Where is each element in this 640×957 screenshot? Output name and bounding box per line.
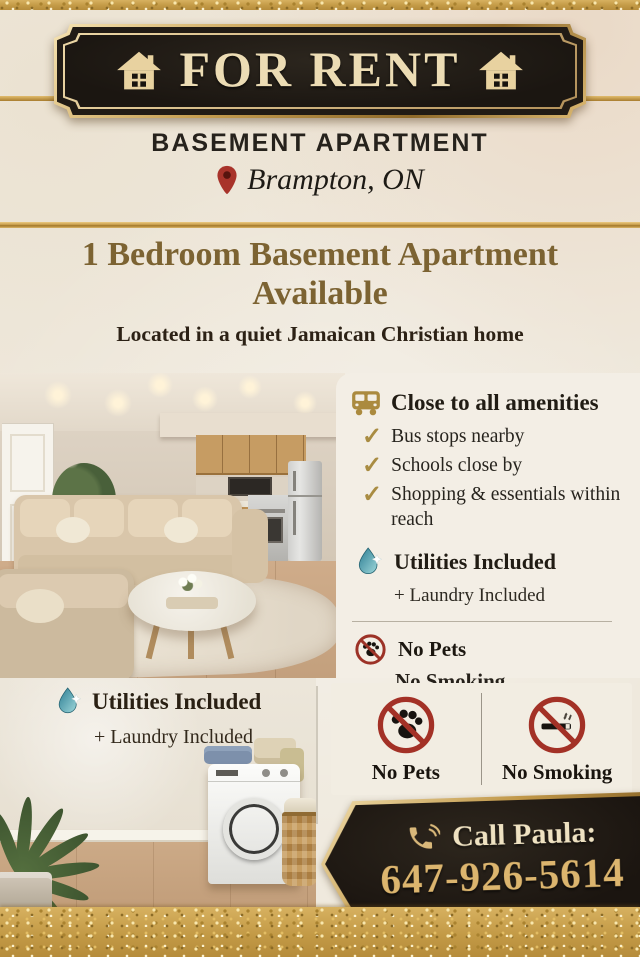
gold-glitter-top-band [0, 0, 640, 10]
laundry-utilities-title: Utilities Included [92, 689, 261, 715]
no-pets-label: No Pets [372, 760, 440, 785]
fridge-handle [293, 471, 296, 491]
microwave [228, 477, 272, 496]
bulkhead [160, 413, 345, 437]
panel-divider [352, 621, 612, 622]
headline-line2: Available [252, 275, 387, 312]
sofa-arm [232, 509, 268, 583]
phone-number: 647-926-5614 [380, 851, 626, 902]
checkmark-icon: ✓ [362, 483, 382, 508]
checkmark-icon: ✓ [362, 454, 382, 479]
accent-pillow [56, 517, 90, 543]
potted-palm-plant [0, 770, 108, 928]
loveseat-pillow [16, 589, 64, 623]
water-drop-icon [356, 546, 384, 578]
headline-section: 1 Bedroom Basement Apartment Available L… [0, 235, 640, 373]
gold-glitter-bottom-band [0, 907, 640, 957]
laundry-included-text: + Laundry Included [394, 585, 630, 607]
flower-vase [174, 573, 204, 591]
header: FOR RENT BASEMENT APARTMENT Brampton, ON [0, 24, 640, 222]
for-rent-sign: FOR RENT [54, 24, 586, 118]
banner-content: Call Paula: 647-926-5614 [355, 798, 640, 919]
amenities-list: ✓ Bus stops nearby ✓ Schools close by ✓ … [350, 425, 630, 532]
no-smoking-label: No Smoking [502, 760, 612, 785]
laundry-utilities-row: Utilities Included [56, 686, 261, 717]
amenities-title: Close to all amenities [391, 390, 599, 416]
refrigerator [288, 461, 322, 561]
washer-display [216, 770, 238, 776]
utilities-title: Utilities Included [394, 549, 556, 575]
amenity-item: ✓ Schools close by [362, 454, 630, 479]
fridge-handle [293, 501, 296, 535]
phone-icon [406, 823, 441, 854]
amenity-text: Shopping & essentials within reach [391, 483, 623, 532]
amenity-item: ✓ Bus stops nearby [362, 425, 630, 450]
door-panel [10, 434, 45, 492]
no-pets-text: No Pets [398, 637, 466, 662]
no-pets-badge: No Pets [331, 683, 481, 795]
loveseat [0, 569, 134, 678]
location-row: Brampton, ON [0, 163, 640, 197]
rules-badges-card: No Pets No Smoking [331, 683, 632, 795]
house-icon [116, 50, 162, 92]
main-section: Close to all amenities ✓ Bus stops nearb… [0, 373, 640, 678]
rental-flyer: FOR RENT BASEMENT APARTMENT Brampton, ON [0, 0, 640, 957]
headline: 1 Bedroom Basement Apartment Available [0, 235, 640, 314]
washer-knob [280, 769, 288, 777]
info-panel: Close to all amenities ✓ Bus stops nearb… [336, 373, 640, 678]
apartment-type-subtitle: BASEMENT APARTMENT [0, 129, 640, 158]
bus-icon [350, 389, 382, 417]
rules-row: No Pets [354, 633, 630, 666]
location-text: Brampton, ON [247, 163, 424, 197]
amenities-title-row: Close to all amenities [350, 389, 630, 417]
laundry-included-text: + Laundry Included [94, 726, 253, 749]
sign-content: FOR RENT [54, 24, 586, 118]
accent-pillow [164, 517, 198, 543]
utilities-row: Utilities Included [356, 546, 630, 578]
gold-divider-rule [0, 222, 640, 228]
amenity-text: Schools close by [391, 454, 522, 478]
location-pin-icon [216, 165, 238, 196]
no-smoking-icon [526, 694, 588, 756]
washer-door [223, 798, 285, 860]
water-drop-icon [56, 686, 83, 717]
table-tray [166, 597, 218, 609]
amenity-text: Bus stops nearby [391, 425, 524, 449]
sign-title: FOR RENT [180, 44, 461, 98]
amenity-item: ✓ Shopping & essentials within reach [362, 483, 630, 532]
checkmark-icon: ✓ [362, 425, 382, 450]
no-pets-icon [354, 633, 387, 666]
vertical-divider [316, 686, 318, 824]
wicker-basket [282, 812, 316, 886]
living-room-photo [0, 373, 345, 678]
laundry-room-photo: Utilities Included + Laundry Included [0, 678, 316, 928]
tagline: Located in a quiet Jamaican Christian ho… [0, 322, 640, 347]
call-label: Call Paula: [452, 816, 597, 855]
bottom-section: Utilities Included + Laundry Included No… [0, 678, 640, 928]
house-icon [478, 50, 524, 92]
no-pets-icon [375, 694, 437, 756]
round-coffee-table [128, 571, 256, 631]
headline-line1: 1 Bedroom Basement Apartment [82, 236, 558, 273]
no-smoking-badge: No Smoking [482, 683, 632, 795]
washer-knob [262, 769, 270, 777]
fridge-door-split [288, 495, 322, 497]
